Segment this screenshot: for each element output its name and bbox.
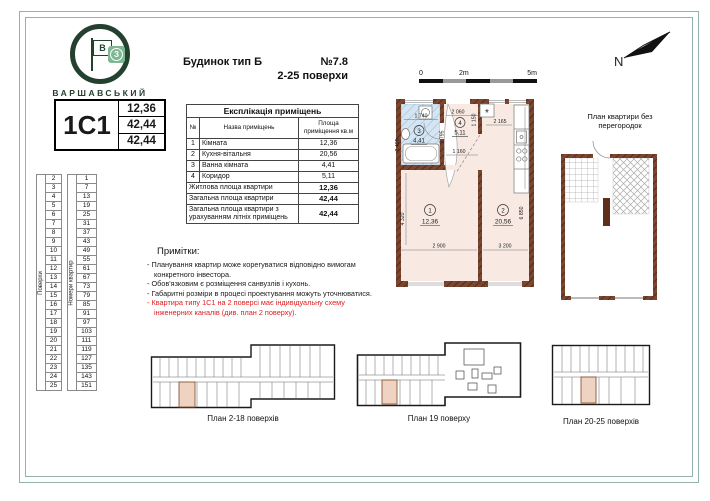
notes-title: Примітки:	[157, 246, 384, 257]
dim-entry: 1 150	[472, 113, 478, 126]
explication-row: 2Кухня-вітальня20,56	[187, 150, 359, 161]
floor-plan-2-18-label: План 2-18 поверхів	[150, 414, 336, 423]
entry-opening	[446, 99, 470, 104]
notes-list: - Планування квартир може корегуватися в…	[147, 260, 384, 317]
notes-section: Примітки: - Планування квартир може коре…	[147, 246, 384, 317]
total-summer-value: 42,44	[299, 205, 359, 224]
dim-bath-width: 1 740	[415, 114, 428, 120]
plan-number: №7.8	[250, 56, 348, 68]
np-shaft	[603, 198, 610, 226]
room4-area: 5,11	[454, 131, 466, 137]
north-label: N	[614, 54, 623, 69]
no-partitions-plan	[557, 138, 661, 306]
floors-apartments-table: Поверхи 23456789101112131415161718192021…	[36, 174, 97, 391]
north-arrow-icon: N	[610, 24, 676, 70]
scale-0: 0	[419, 70, 423, 77]
explication-cell: Кухня-вітальня	[200, 150, 299, 161]
dim-room1-width: 2 900	[433, 244, 446, 250]
apartment-type-card: 1С1 12,36 42,44 42,44	[54, 99, 166, 151]
col-header-area: Площа приміщення кв.м	[299, 118, 359, 139]
dim-hall-bottom: 1 160	[453, 149, 466, 155]
room2-area: 20,56	[495, 219, 512, 226]
apartments-column-values: 1713192531374349556167737985919710311111…	[76, 174, 97, 391]
explication-cell: 3	[187, 161, 200, 172]
note-item: - Габаритні розміри в процесі проектуван…	[147, 289, 384, 299]
scale-bar-segments	[419, 79, 537, 83]
note-item: - Квартира типу 1С1 на 2 поверсі має інд…	[147, 298, 384, 317]
total-summer-label: Загальна площа квартири з урахуванням лі…	[187, 205, 299, 224]
hatch-area-right	[613, 158, 649, 214]
explication-cell: 4	[187, 172, 200, 183]
explication-cell: Коридор	[200, 172, 299, 183]
dim-bath-height: 2 405	[395, 138, 401, 151]
explication-cell: 4,41	[299, 161, 359, 172]
floor-plan-2-18	[150, 343, 336, 409]
plan-sheet: В З ВАРШАВСЬКИЙ Будинок тип Б №7.8 2-25 …	[0, 0, 710, 501]
no-partitions-label: План квартири без перегородок	[574, 112, 666, 130]
area-total: 42,44	[119, 116, 164, 132]
total-living-label: Житлова площа квартири	[187, 183, 299, 194]
col-header-num: №	[187, 118, 200, 139]
explication-rows: 1Кімната12,362Кухня-вітальня20,563Ванна …	[187, 139, 359, 183]
explication-row: 4Коридор5,11	[187, 172, 359, 183]
badge-icon: З	[108, 46, 125, 63]
floors-column-values: 2345678910111213141516171819202122232425	[45, 174, 62, 391]
apartment-type-areas: 12,36 42,44 42,44	[118, 101, 164, 149]
apartment-type-code: 1С1	[56, 101, 118, 149]
explication-cell: 5,11	[299, 172, 359, 183]
note-item: - Планування квартир може корегуватися в…	[147, 260, 384, 279]
room3-area: 4,41	[413, 139, 425, 145]
floor-plan-20-25-label: План 20-25 поверхів	[528, 417, 674, 426]
floor-plan-19-label: План 19 поверху	[356, 414, 522, 423]
explication-cell: 1	[187, 139, 200, 150]
dim-room2-height: 6 850	[519, 206, 525, 219]
brand-name: ВАРШАВСЬКИЙ	[34, 88, 166, 98]
highlighted-unit	[179, 382, 195, 407]
col-header-name: Назва приміщень	[200, 118, 299, 139]
highlighted-unit	[581, 377, 596, 403]
note-item: - Обов'язковим є розміщення санвузлів і …	[147, 279, 384, 289]
highlighted-unit	[382, 380, 397, 404]
scale-2m: 2m	[459, 70, 469, 77]
area-total-summer: 42,44	[119, 133, 164, 149]
explication-table: Експлікація приміщень № Назва приміщень …	[186, 104, 359, 224]
apartments-column: Номери квартир 1713192531374349556167737…	[67, 174, 97, 391]
floors-column: Поверхи 23456789101112131415161718192021…	[36, 174, 62, 391]
bathtub-icon	[403, 144, 439, 163]
dim-room2-width: 3 200	[499, 244, 512, 250]
scale-5m: 5m	[527, 70, 537, 77]
room1-area: 12,36	[422, 219, 439, 226]
area-living: 12,36	[119, 101, 164, 116]
total-overall-value: 42,44	[299, 194, 359, 205]
apartment-number-cell: 151	[76, 381, 97, 391]
dim-room1-height: 4 320	[400, 212, 406, 225]
total-overall-label: Загальна площа квартири	[187, 194, 299, 205]
main-apartment-plan: * 2 900 3 200 4 320 6 850 2 060 2 795 1 …	[392, 93, 538, 293]
dim-kitchen-top: 2 165	[494, 119, 507, 125]
dim-hall-height: 2 795	[440, 130, 446, 143]
hall-opening	[446, 165, 478, 170]
explication-cell: 12,36	[299, 139, 359, 150]
dim-hall-top: 2 060	[452, 110, 465, 116]
total-living-value: 12,36	[299, 183, 359, 194]
brand-logo-icon: В З	[70, 24, 130, 84]
explication-row: 3Ванна кімната4,41	[187, 161, 359, 172]
explication-cell: Кімната	[200, 139, 299, 150]
scale-bar: 0 2m 5m	[419, 70, 537, 83]
explication-cell: 20,56	[299, 150, 359, 161]
explication-cell: Ванна кімната	[200, 161, 299, 172]
floor-cell: 25	[45, 381, 62, 391]
hatch-area-left	[565, 158, 598, 202]
explication-row: 1Кімната12,36	[187, 139, 359, 150]
vent-symbol: *	[485, 108, 489, 119]
floor-plan-19	[356, 339, 522, 409]
explication-cell: 2	[187, 150, 200, 161]
floor-plan-20-25	[551, 344, 651, 406]
washbasin-icon	[402, 129, 410, 140]
explication-title: Експлікація приміщень	[187, 105, 359, 118]
kitchen-counter	[514, 105, 529, 193]
floors-range: 2-25 поверхи	[250, 70, 348, 82]
